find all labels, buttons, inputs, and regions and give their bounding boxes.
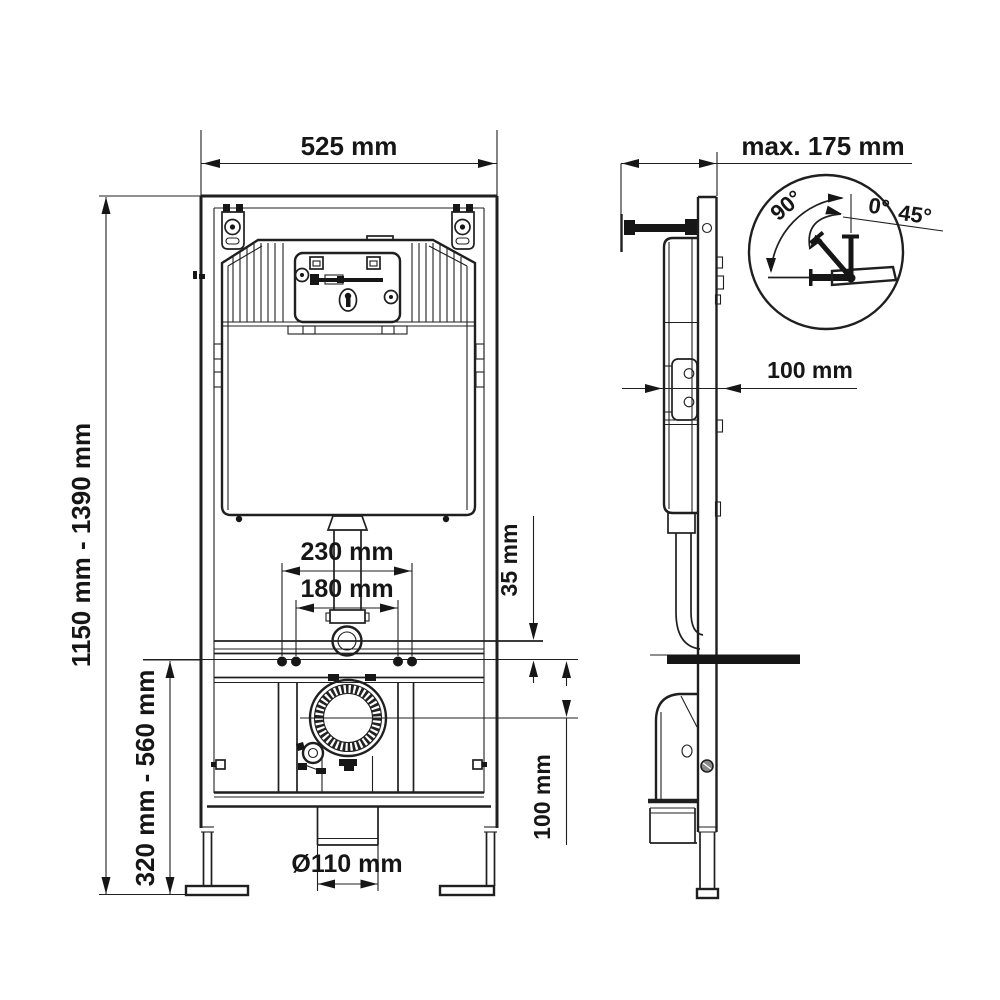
wc-bracket-side bbox=[672, 359, 697, 420]
dimension-rail-offset-35: 35 mm bbox=[496, 516, 538, 683]
bracket-depth-label: 100 mm bbox=[767, 357, 853, 383]
rod-hole bbox=[703, 224, 712, 233]
rod-block bbox=[310, 274, 319, 285]
outlet-height-dimension-label: 320 mm - 560 mm bbox=[130, 670, 160, 887]
access-panel bbox=[295, 253, 400, 322]
side-view: max. 175 mm bbox=[621, 131, 912, 898]
bolt-spacing-inner-label: 180 mm bbox=[300, 575, 393, 603]
wall-bracket-left bbox=[222, 204, 244, 249]
frame-profile-side bbox=[698, 197, 724, 832]
leg-right bbox=[440, 827, 497, 895]
leg-side bbox=[697, 827, 718, 898]
foot-plate-side bbox=[697, 889, 718, 898]
width-dimension-label: 525 mm bbox=[301, 131, 398, 161]
drain-socket bbox=[310, 674, 560, 771]
angle-detail: 90° 0° 45° bbox=[749, 175, 943, 329]
dimension-width-525: 525 mm bbox=[201, 130, 497, 196]
drain-axis-offset-label: 100 mm bbox=[529, 754, 555, 840]
fixing-bolt bbox=[393, 657, 403, 667]
bolt-angled bbox=[819, 241, 851, 278]
frame-outline bbox=[201, 196, 497, 828]
leg-left bbox=[186, 827, 248, 895]
angle-90-label: 90° bbox=[765, 185, 807, 226]
dimension-drain-pipe-110: Ø110 mm bbox=[291, 807, 402, 891]
bolt-spacing-outer-label: 230 mm bbox=[300, 538, 393, 566]
fixing-bolt bbox=[291, 657, 301, 667]
max-depth-label: max. 175 mm bbox=[741, 131, 904, 161]
dimension-bracket-depth-100: 100 mm bbox=[622, 357, 857, 393]
side-screw-right bbox=[473, 760, 487, 769]
wall-anchor-rod bbox=[622, 214, 698, 252]
fixing-bolt bbox=[277, 657, 287, 667]
drain-elbow-side bbox=[648, 694, 713, 843]
side-screw-left bbox=[211, 760, 225, 769]
cistern-front bbox=[222, 236, 475, 522]
installation-frame-drawing: 525 mm 1150 mm - 1390 mm 320 mm - 560 mm bbox=[0, 0, 1000, 1000]
bottom-rail bbox=[207, 793, 491, 807]
pivot-dot bbox=[847, 274, 856, 283]
angle-45-label: 45° bbox=[897, 200, 933, 229]
angle-0-label: 0° bbox=[867, 193, 891, 221]
front-view: 525 mm 1150 mm - 1390 mm 320 mm - 560 mm bbox=[66, 130, 578, 895]
wc-fixing-rod bbox=[667, 655, 800, 665]
illegible-mark bbox=[193, 271, 205, 279]
actuating-rod bbox=[319, 278, 383, 282]
bolt-vertical bbox=[849, 237, 854, 278]
dimension-bolt-spacing-180: 180 mm bbox=[296, 575, 398, 656]
technical-drawing: 525 mm 1150 mm - 1390 mm 320 mm - 560 mm bbox=[0, 0, 1000, 1000]
foot-plate-right bbox=[440, 886, 494, 895]
cistern-ribs-left bbox=[233, 243, 283, 322]
foot-plate-left bbox=[186, 886, 248, 895]
inlet-valve bbox=[296, 742, 326, 774]
dimension-outlet-height-320-560: 320 mm - 560 mm bbox=[130, 660, 201, 894]
rail-offset-label: 35 mm bbox=[496, 524, 522, 597]
drain-pipe-diameter-label: Ø110 mm bbox=[291, 850, 402, 878]
cistern-ribs-right bbox=[412, 243, 461, 322]
wall-bracket-right bbox=[452, 204, 474, 249]
fixing-bolt bbox=[407, 657, 417, 667]
height-dimension-label: 1150 mm - 1390 mm bbox=[66, 423, 96, 667]
lower-frame-structure bbox=[214, 678, 484, 793]
